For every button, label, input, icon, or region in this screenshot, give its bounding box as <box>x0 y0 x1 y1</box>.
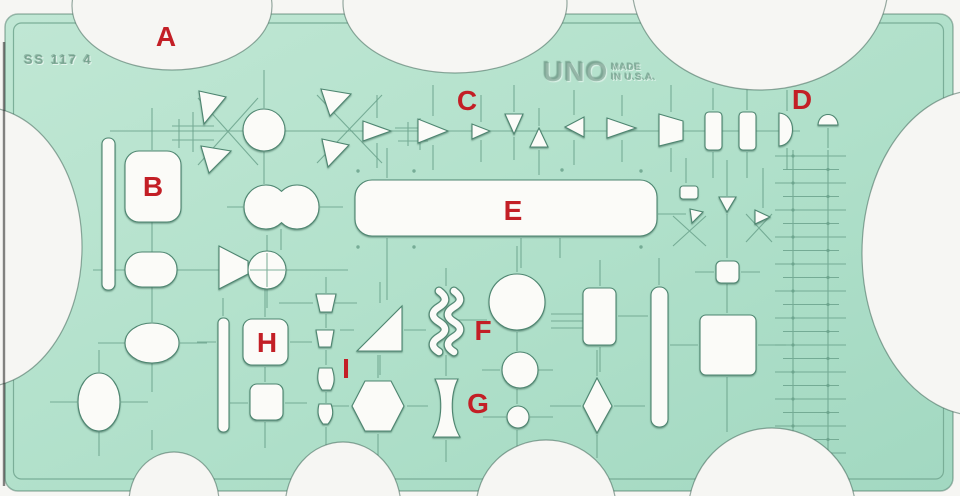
slot-right-tall <box>651 287 668 427</box>
reference-label-b: B <box>143 173 163 201</box>
mini-rect <box>680 186 698 199</box>
square-large-right <box>700 315 756 375</box>
cup-trapezoid-2 <box>316 330 334 347</box>
reference-label-c: C <box>457 87 477 115</box>
vase-1 <box>318 368 334 390</box>
square-small-right <box>716 261 739 283</box>
brand-origin-line2: IN U.S.A. <box>611 73 656 83</box>
brand-origin: MADE IN U.S.A. <box>611 63 656 83</box>
cup-trapezoid-1 <box>316 294 336 312</box>
row-c-rect-1 <box>705 112 722 150</box>
brand-uno: UNO <box>543 58 608 86</box>
ellipse-horizontal <box>125 323 179 363</box>
rect-vertical <box>583 288 616 345</box>
circle-top-center <box>243 109 285 151</box>
peanut-double-circle <box>244 185 319 229</box>
circle-small <box>507 406 529 428</box>
row-c-rect-2 <box>739 112 756 150</box>
reference-label-e: E <box>504 197 523 225</box>
reference-label-a: A <box>156 23 176 51</box>
scanned-stencil-photo: SS 117 4 UNO MADE IN U.S.A. ABCDEFGHI <box>0 0 960 496</box>
reference-label-d: D <box>792 86 812 114</box>
capsule-small-left <box>125 252 177 287</box>
reference-label-h: H <box>257 329 277 357</box>
ellipse-vertical <box>78 373 120 431</box>
brand-mark: UNO MADE IN U.S.A. <box>543 58 656 86</box>
stencil-graphic <box>0 0 960 496</box>
reference-label-i: I <box>342 355 350 383</box>
reference-label-g: G <box>467 390 489 418</box>
slot-left-tall <box>102 138 115 290</box>
reference-label-f: F <box>474 317 491 345</box>
rounded-square-small <box>250 384 283 420</box>
stencil-code: SS 117 4 <box>24 52 93 67</box>
circle-medium <box>502 352 538 388</box>
slot-h-column <box>218 318 229 432</box>
circle-large <box>489 274 545 330</box>
